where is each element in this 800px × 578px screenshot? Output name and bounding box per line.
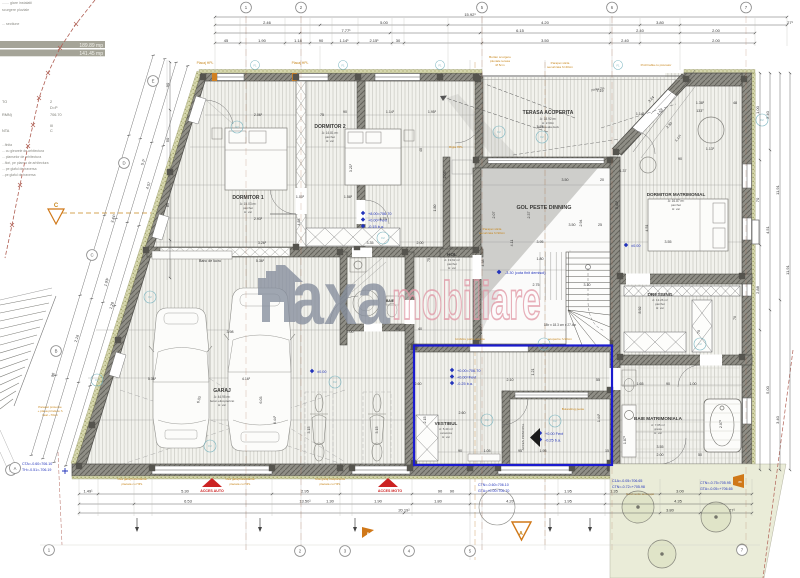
svg-text:3.21¹: 3.21¹ xyxy=(349,163,353,172)
svg-text:70: 70 xyxy=(755,197,760,202)
svg-text:F2: F2 xyxy=(381,236,385,240)
svg-text:15: 15 xyxy=(605,449,609,453)
svg-text:placata cu HPL: placata cu HPL xyxy=(320,482,341,486)
svg-text:1.80: 1.80 xyxy=(434,499,443,504)
svg-text:BAIE MATRIMONIALA: BAIE MATRIMONIALA xyxy=(634,416,683,421)
svg-text:GARAJ: GARAJ xyxy=(213,388,231,394)
svg-text:2: 2 xyxy=(50,100,52,104)
svg-text:F2: F2 xyxy=(208,444,212,448)
svg-text:C: C xyxy=(90,253,93,258)
svg-text:1.87¹: 1.87¹ xyxy=(623,435,627,444)
svg-text:Usa garaj basculanta: Usa garaj basculanta xyxy=(225,477,254,481)
svg-text:85: 85 xyxy=(165,202,170,207)
svg-text:H: var: H: var xyxy=(672,207,680,211)
svg-text:4.38: 4.38 xyxy=(481,260,485,267)
svg-text:3.40: 3.40 xyxy=(775,415,780,424)
svg-text:3.50: 3.50 xyxy=(541,38,550,43)
svg-text:1.05: 1.05 xyxy=(484,449,491,453)
svg-text:55: 55 xyxy=(596,378,600,382)
svg-text:70: 70 xyxy=(697,330,701,334)
svg-text:6.03: 6.03 xyxy=(259,397,263,404)
svg-text:25: 25 xyxy=(598,223,602,227)
svg-text:5.00: 5.00 xyxy=(765,385,770,394)
svg-text:1.35: 1.35 xyxy=(610,489,619,494)
svg-text:placata cu HPL: placata cu HPL xyxy=(230,482,251,486)
svg-text:... sectiune: ... sectiune xyxy=(2,22,19,26)
svg-text:...flori, pe plansa de arh: ...flori, pe plansa de arhitectura xyxy=(2,161,49,165)
svg-text:acoperire h-90cm: acoperire h-90cm xyxy=(548,337,572,341)
svg-text:1.58¹: 1.58¹ xyxy=(344,195,353,199)
svg-text:141.45 mp: 141.45 mp xyxy=(79,51,103,57)
svg-text:F2: F2 xyxy=(553,419,557,423)
svg-text:1.00¹: 1.00¹ xyxy=(296,195,305,199)
svg-text:ACCES PRINCIPAL: ACCES PRINCIPAL xyxy=(521,423,525,450)
svg-text:70: 70 xyxy=(733,316,737,320)
svg-text:6.53: 6.53 xyxy=(184,499,193,504)
svg-text:DORMITOR MATRIMONIAL: DORMITOR MATRIMONIAL xyxy=(647,192,706,197)
svg-text:3.80: 3.80 xyxy=(666,508,675,513)
svg-text:axa: axa xyxy=(291,257,391,340)
svg-text:4.20: 4.20 xyxy=(541,20,550,25)
svg-text:+0.00=Fevt: +0.00=Fevt xyxy=(457,376,477,380)
svg-text:H: var: H: var xyxy=(326,139,334,143)
svg-text:1.44¹: 1.44¹ xyxy=(597,413,601,422)
svg-text:3.26¹: 3.26¹ xyxy=(258,241,267,245)
svg-text:Ø 5cm: Ø 5cm xyxy=(495,63,505,67)
svg-text:±0.00: ±0.00 xyxy=(631,244,640,248)
svg-text:1.80: 1.80 xyxy=(537,257,544,261)
svg-text:B: B xyxy=(55,349,58,354)
svg-text:2.15¹: 2.15¹ xyxy=(369,38,379,43)
svg-text:1.13¹: 1.13¹ xyxy=(706,147,715,151)
svg-text:3.10: 3.10 xyxy=(584,283,591,287)
svg-text:DORMITOR 1: DORMITOR 1 xyxy=(232,195,264,201)
svg-text:... planselor de arhitectura: ... planselor de arhitectura xyxy=(2,155,41,159)
svg-text:HOL: HOL xyxy=(447,252,457,257)
svg-text:F2: F2 xyxy=(485,418,489,422)
svg-text:1.90: 1.90 xyxy=(258,38,267,43)
svg-text:4.35: 4.35 xyxy=(674,499,683,504)
svg-text:3.35: 3.35 xyxy=(367,241,374,245)
svg-text:2.40: 2.40 xyxy=(636,28,645,33)
svg-text:3.80: 3.80 xyxy=(656,20,665,25)
svg-text:4.16¹: 4.16¹ xyxy=(242,377,251,381)
svg-text:CTN=-0.75=705.95: CTN=-0.75=705.95 xyxy=(700,481,731,485)
svg-text:3.15: 3.15 xyxy=(307,427,311,434)
svg-text:7.77¹: 7.77¹ xyxy=(341,28,351,33)
svg-text:15.92¹: 15.92¹ xyxy=(464,12,476,17)
svg-text:90: 90 xyxy=(319,38,324,43)
svg-text:20: 20 xyxy=(600,178,604,182)
svg-text:75: 75 xyxy=(320,113,324,117)
svg-text:2.60: 2.60 xyxy=(415,382,422,386)
svg-text:3.00: 3.00 xyxy=(676,489,685,494)
svg-text:6.15: 6.15 xyxy=(516,28,525,33)
svg-text:D: D xyxy=(122,161,125,166)
svg-text:5.30: 5.30 xyxy=(181,489,190,494)
svg-text:2.37: 2.37 xyxy=(527,212,531,219)
svg-text:40: 40 xyxy=(419,148,423,152)
svg-text:3.78: 3.78 xyxy=(537,125,544,129)
svg-text:1.14¹: 1.14¹ xyxy=(636,112,645,116)
svg-text:2.06¹: 2.06¹ xyxy=(254,113,263,117)
svg-text:2.00: 2.00 xyxy=(657,453,664,457)
svg-text:1.90: 1.90 xyxy=(374,499,383,504)
svg-text:2.07: 2.07 xyxy=(492,212,496,219)
svg-text:Rigla HPL: Rigla HPL xyxy=(449,145,463,149)
svg-text:2.07¹: 2.07¹ xyxy=(719,419,723,428)
svg-text:C: C xyxy=(50,129,53,133)
svg-text:1.38¹: 1.38¹ xyxy=(696,101,705,105)
svg-text:6.44¹: 6.44¹ xyxy=(273,415,277,424)
svg-text:27¹: 27¹ xyxy=(787,20,793,25)
svg-text:90: 90 xyxy=(450,489,455,494)
svg-text:133°: 133° xyxy=(696,109,704,113)
svg-text:3.98: 3.98 xyxy=(227,330,234,334)
svg-text:5.43¹: 5.43¹ xyxy=(615,200,619,209)
svg-text:securizata h=90cm: securizata h=90cm xyxy=(479,231,505,235)
svg-text:2.88: 2.88 xyxy=(755,285,760,294)
svg-text:3.95: 3.95 xyxy=(537,240,544,244)
svg-text:1.65: 1.65 xyxy=(637,382,644,386)
svg-text:1.95: 1.95 xyxy=(564,489,573,494)
svg-text:...finita: ...finita xyxy=(2,143,12,147)
svg-text:1.30: 1.30 xyxy=(326,499,335,504)
svg-text:2.00: 2.00 xyxy=(712,38,721,43)
svg-text:Banc de lucru: Banc de lucru xyxy=(199,259,221,263)
svg-text:1.80: 1.80 xyxy=(433,205,437,212)
svg-text:Buiandrug peste: Buiandrug peste xyxy=(562,407,585,411)
svg-text:75: 75 xyxy=(427,258,431,262)
svg-text:+0.00 Fevt: +0.00 Fevt xyxy=(545,432,564,436)
svg-text:1.18: 1.18 xyxy=(294,38,303,43)
svg-text:1.14¹: 1.14¹ xyxy=(386,110,395,114)
svg-text:TERASA ACOPERITA: TERASA ACOPERITA xyxy=(523,110,574,116)
svg-text:....... glare instalatii: ....... glare instalatii xyxy=(2,1,32,5)
svg-text:3.50: 3.50 xyxy=(562,178,569,182)
svg-text:45: 45 xyxy=(224,38,229,43)
svg-text:Usa garaj trasparenta: Usa garaj trasparenta xyxy=(315,477,345,481)
svg-text:4.20: 4.20 xyxy=(506,499,515,504)
svg-text:F2: F2 xyxy=(540,135,544,139)
svg-text:4.51: 4.51 xyxy=(765,225,770,234)
svg-text:H: var: H: var xyxy=(656,306,664,310)
svg-text:GTA=+0.00=706.70: GTA=+0.00=706.70 xyxy=(478,489,509,493)
svg-text:4.75: 4.75 xyxy=(380,217,387,221)
svg-text:scurgere pluviale: scurgere pluviale xyxy=(2,8,29,12)
svg-text:Umbrire porte cornice: Umbrire porte cornice xyxy=(455,337,485,341)
svg-text:11.91: 11.91 xyxy=(785,264,790,274)
svg-text:F2: F2 xyxy=(235,125,239,129)
svg-text:1.95¹: 1.95¹ xyxy=(428,110,437,114)
svg-text:50: 50 xyxy=(698,453,702,457)
svg-text:Placaj HPL: Placaj HPL xyxy=(197,61,214,65)
svg-text:5.00: 5.00 xyxy=(380,20,389,25)
svg-text:A: A xyxy=(519,531,523,537)
svg-text:90: 90 xyxy=(666,382,670,386)
svg-text:+8.00=706.70: +8.00=706.70 xyxy=(368,212,391,216)
svg-text:securizata h=40cm: securizata h=40cm xyxy=(547,65,573,69)
svg-text:... pe glaful de traversa: ... pe glaful de traversa xyxy=(2,167,37,171)
svg-text:30: 30 xyxy=(396,38,401,43)
svg-text:90: 90 xyxy=(343,110,347,114)
svg-text:+0.00=706.70: +0.00=706.70 xyxy=(457,369,480,373)
svg-text:Profil tabla cu picurator: Profil tabla cu picurator xyxy=(641,63,672,67)
svg-text:2.00: 2.00 xyxy=(712,28,721,33)
svg-text:A: A xyxy=(14,466,17,471)
svg-text:11.91: 11.91 xyxy=(775,184,780,194)
svg-text:H: var: H: var xyxy=(244,210,252,214)
svg-text:2.15: 2.15 xyxy=(423,417,427,424)
svg-text:88: 88 xyxy=(738,480,742,484)
svg-text:DORMITOR 2: DORMITOR 2 xyxy=(314,124,346,130)
svg-text:1.00: 1.00 xyxy=(755,105,760,114)
svg-text:1.95: 1.95 xyxy=(540,449,547,453)
svg-text:2.00: 2.00 xyxy=(417,241,424,245)
svg-text:706.70: 706.70 xyxy=(50,113,62,117)
svg-text:2.40: 2.40 xyxy=(765,110,770,119)
svg-text:RMN): RMN) xyxy=(2,113,13,117)
svg-text:TO: TO xyxy=(2,100,7,104)
svg-text:VESTIBUL: VESTIBUL xyxy=(435,421,458,426)
svg-text:placata cu HPL: placata cu HPL xyxy=(122,482,143,486)
svg-text:F2: F2 xyxy=(333,380,337,384)
svg-text:CTN=-0.60=706.10: CTN=-0.60=706.10 xyxy=(478,483,509,487)
svg-text:±0.00: ±0.00 xyxy=(317,370,326,374)
svg-text:3.15: 3.15 xyxy=(375,427,379,434)
svg-text:D=P: D=P xyxy=(50,106,58,110)
svg-text:C1A=-0.05=706.65: C1A=-0.05=706.65 xyxy=(612,479,642,483)
svg-text:GOL PESTE DINNING: GOL PESTE DINNING xyxy=(516,205,571,211)
svg-text:GTA=-0.05=+706.65: GTA=-0.05=+706.65 xyxy=(700,487,733,491)
svg-text:E: E xyxy=(152,79,155,84)
svg-text:20.19¹: 20.19¹ xyxy=(398,508,410,513)
svg-text:F2: F2 xyxy=(148,295,152,299)
svg-text:2.10: 2.10 xyxy=(507,378,514,382)
svg-text:C: C xyxy=(54,203,59,209)
svg-text:5.36¹: 5.36¹ xyxy=(148,377,157,381)
svg-text:4.83: 4.83 xyxy=(297,219,301,226)
svg-text:2.40: 2.40 xyxy=(621,38,630,43)
svg-text:Usa garaj basculanta: Usa garaj basculanta xyxy=(117,477,146,481)
svg-text:... cu glearele de arhitectur: ... cu glearele de arhitectura xyxy=(2,149,44,153)
svg-text:TH=-0.51=-706.19: TH=-0.51=-706.19 xyxy=(22,468,51,472)
svg-text:2.93¹: 2.93¹ xyxy=(254,217,263,221)
svg-text:-0.25 b.a.: -0.25 b.a. xyxy=(545,439,561,443)
svg-text:F2: F2 xyxy=(95,378,99,382)
svg-text:H: var: H: var xyxy=(442,435,450,439)
svg-text:CTA=-0.60=706.10: CTA=-0.60=706.10 xyxy=(22,462,52,466)
svg-text:1.14¹: 1.14¹ xyxy=(339,38,349,43)
svg-text:48: 48 xyxy=(733,101,737,105)
svg-text:2.03: 2.03 xyxy=(443,172,447,179)
svg-text:2.46: 2.46 xyxy=(263,20,272,25)
svg-text:Placaj HPL: Placaj HPL xyxy=(292,61,309,65)
svg-text:ACCES MOTO: ACCES MOTO xyxy=(378,489,402,493)
svg-text:5.36¹: 5.36¹ xyxy=(256,259,265,263)
svg-text:NTA: NTA xyxy=(2,129,10,133)
svg-text:1.21: 1.21 xyxy=(531,369,535,376)
svg-text:50: 50 xyxy=(165,137,170,142)
svg-text:mobiliare: mobiliare xyxy=(392,270,541,331)
svg-text:18tr x 18.3 cm x 27.4m: 18tr x 18.3 cm x 27.4m xyxy=(544,323,577,327)
svg-text:2.60: 2.60 xyxy=(459,411,466,415)
svg-text:ACCES AUTO: ACCES AUTO xyxy=(200,489,224,493)
svg-text:3.55: 3.55 xyxy=(657,445,664,449)
svg-text:H: var: H: var xyxy=(218,403,226,407)
svg-text:...pe glaful de traversa: ...pe glaful de traversa xyxy=(2,173,36,177)
svg-text:F2: F2 xyxy=(698,342,702,346)
svg-text:-0.15 b.a.: -0.15 b.a. xyxy=(368,225,384,229)
svg-text:8.92: 8.92 xyxy=(638,307,642,314)
svg-text:4.11: 4.11 xyxy=(510,240,514,247)
svg-text:-0.25 b.a.: -0.25 b.a. xyxy=(457,382,473,386)
svg-text:90: 90 xyxy=(458,449,462,453)
svg-text:4.51: 4.51 xyxy=(645,225,649,232)
svg-text:27¹: 27¹ xyxy=(729,508,735,513)
svg-text:1.00: 1.00 xyxy=(690,382,697,386)
svg-text:90: 90 xyxy=(678,157,682,161)
svg-text:2.95: 2.95 xyxy=(301,489,310,494)
svg-text:H: var: H: var xyxy=(654,431,662,435)
svg-text:III: III xyxy=(50,124,53,128)
svg-text:1.95: 1.95 xyxy=(564,499,573,504)
svg-text:F2: F2 xyxy=(497,130,501,134)
svg-text:2.94: 2.94 xyxy=(579,220,583,227)
svg-text:1.49¹: 1.49¹ xyxy=(83,489,93,494)
svg-text:189.89 mp: 189.89 mp xyxy=(79,43,103,49)
svg-text:90: 90 xyxy=(438,489,443,494)
svg-text:3.55: 3.55 xyxy=(665,240,672,244)
svg-text:F2: F2 xyxy=(760,118,764,122)
svg-text:3.50: 3.50 xyxy=(569,223,576,227)
svg-text:90: 90 xyxy=(165,82,170,87)
svg-text:1.37: 1.37 xyxy=(620,169,627,173)
